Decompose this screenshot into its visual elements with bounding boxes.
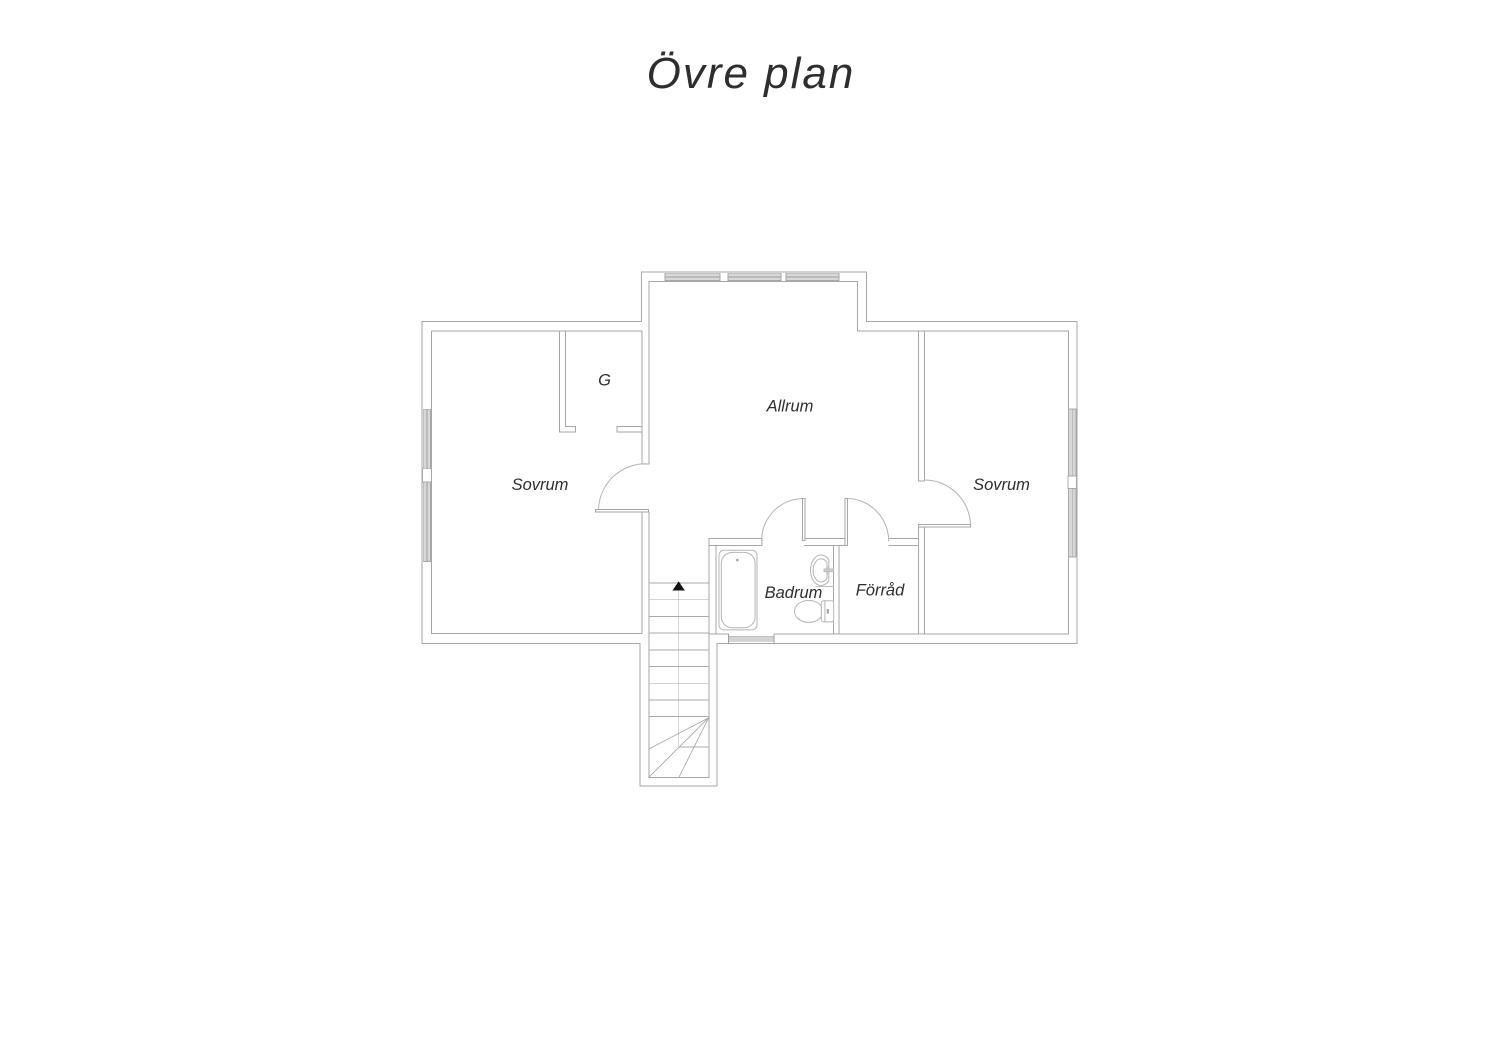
svg-text:Övre plan: Övre plan	[647, 49, 856, 98]
svg-text:Allrum: Allrum	[766, 398, 814, 416]
svg-text:Badrum: Badrum	[765, 584, 823, 602]
svg-text:Sovrum: Sovrum	[973, 476, 1030, 494]
svg-text:Förråd: Förråd	[856, 582, 905, 600]
svg-text:G: G	[598, 372, 611, 390]
svg-text:Sovrum: Sovrum	[512, 476, 569, 494]
